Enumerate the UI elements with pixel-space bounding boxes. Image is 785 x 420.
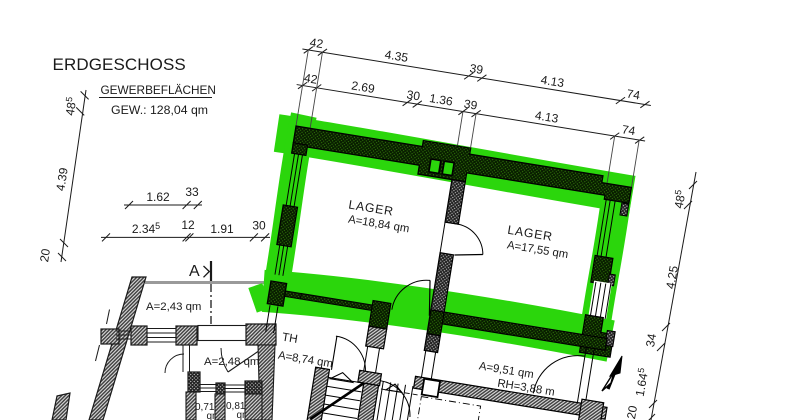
svg-text:1.62: 1.62 bbox=[146, 190, 170, 204]
svg-text:A: A bbox=[189, 263, 200, 280]
svg-text:12: 12 bbox=[181, 218, 195, 232]
svg-text:30: 30 bbox=[252, 219, 266, 233]
svg-text:30: 30 bbox=[406, 87, 422, 103]
svg-text:TH: TH bbox=[281, 330, 299, 346]
svg-text:20: 20 bbox=[37, 247, 53, 263]
svg-text:GEW.: 128,04 qm: GEW.: 128,04 qm bbox=[111, 103, 208, 117]
svg-text:42: 42 bbox=[303, 71, 319, 87]
svg-text:74: 74 bbox=[621, 122, 637, 138]
svg-text:39: 39 bbox=[469, 61, 485, 77]
svg-text:20: 20 bbox=[624, 404, 640, 420]
svg-text:GEWERBEFLÄCHEN: GEWERBEFLÄCHEN bbox=[101, 83, 216, 97]
svg-text:34: 34 bbox=[643, 332, 659, 348]
svg-text:42: 42 bbox=[309, 35, 325, 51]
svg-text:A=2,48 qm: A=2,48 qm bbox=[204, 356, 259, 368]
svg-text:ERDGESCHOSS: ERDGESCHOSS bbox=[53, 55, 186, 74]
svg-text:A=2,43 qm: A=2,43 qm bbox=[146, 301, 201, 313]
svg-text:74: 74 bbox=[626, 87, 642, 103]
svg-text:39: 39 bbox=[463, 97, 479, 113]
svg-text:1.91: 1.91 bbox=[210, 222, 234, 236]
svg-text:33: 33 bbox=[185, 185, 199, 199]
